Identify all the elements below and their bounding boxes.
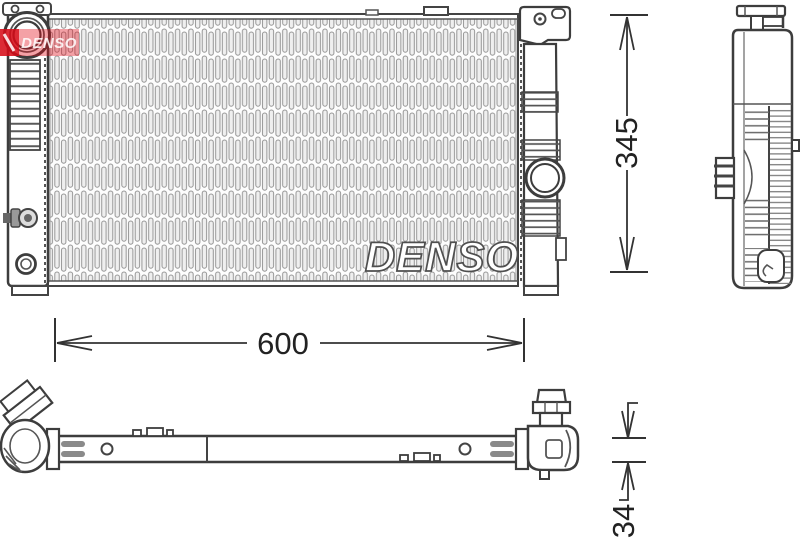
bottom-right-connector bbox=[516, 390, 578, 479]
top-tab bbox=[424, 7, 448, 15]
arrow-left-icon bbox=[57, 343, 92, 350]
dimension-depth: 34 bbox=[606, 403, 646, 538]
dimension-width: 600 bbox=[55, 318, 524, 362]
bar-clip bbox=[133, 430, 141, 436]
technical-drawing-canvas: DENSO bbox=[0, 0, 800, 544]
denso-core-watermark: DENSO bbox=[365, 233, 519, 280]
bar-clip bbox=[414, 453, 430, 461]
right-foot bbox=[524, 286, 558, 295]
bar-slot-icon bbox=[61, 451, 85, 457]
side-ribs-1 bbox=[745, 108, 769, 142]
arrow-up-icon bbox=[627, 17, 634, 50]
left-rib-block bbox=[10, 60, 40, 150]
right-end-flange bbox=[516, 429, 528, 469]
dimension-height: 345 bbox=[609, 15, 648, 272]
bottom-left-connector bbox=[0, 377, 59, 472]
bar-clip bbox=[167, 430, 173, 436]
right-ribs-upper bbox=[522, 92, 558, 112]
bracket-hole-center bbox=[538, 17, 542, 21]
bar-clip bbox=[434, 455, 440, 461]
side-ribs-2 bbox=[745, 196, 769, 240]
side-view bbox=[714, 6, 799, 288]
bar-clip bbox=[147, 428, 163, 436]
radiator-drawing: DENSO bbox=[0, 0, 800, 544]
pipe-ring bbox=[533, 402, 570, 413]
top-notch bbox=[366, 10, 378, 15]
dimension-width-value: 600 bbox=[257, 326, 309, 361]
right-ribs-mid bbox=[522, 140, 560, 160]
denso-logo-watermark: DENSO bbox=[0, 29, 79, 56]
side-right-stub bbox=[792, 140, 799, 151]
bar-slot-icon bbox=[490, 451, 514, 457]
arrow-down-icon bbox=[620, 237, 627, 270]
bracket-slot-icon bbox=[552, 9, 565, 18]
denso-watermark-text: DENSO bbox=[365, 233, 519, 280]
arrow-up-icon bbox=[620, 17, 627, 50]
side-top-flange bbox=[737, 6, 785, 16]
side-drain bbox=[758, 250, 784, 282]
bar-slot-icon bbox=[61, 441, 85, 447]
bar-clip bbox=[400, 455, 408, 461]
side-hose-stub bbox=[716, 158, 734, 198]
side-mini-pipe bbox=[763, 17, 783, 26]
bottom-view bbox=[0, 377, 578, 479]
elbow-detail bbox=[546, 440, 562, 458]
arrow-right-icon bbox=[487, 343, 522, 350]
arrow-right-icon bbox=[487, 336, 522, 343]
dimension-height-value: 345 bbox=[609, 117, 644, 169]
bar-slot-icon bbox=[490, 441, 514, 447]
arrow-down-icon bbox=[627, 237, 634, 270]
dimension-depth-value: 34 bbox=[606, 504, 641, 538]
bracket-hole-icon bbox=[37, 6, 44, 13]
left-foot bbox=[12, 286, 48, 295]
bottom-bar bbox=[57, 436, 522, 462]
arrow-left-icon bbox=[57, 336, 92, 343]
elbow-foot bbox=[540, 470, 549, 479]
lower-port-icon bbox=[17, 255, 36, 274]
denso-logo-text: DENSO bbox=[21, 35, 77, 52]
elbow-body bbox=[1, 420, 49, 472]
bar-hole-icon bbox=[102, 444, 113, 455]
bracket-hole-icon bbox=[12, 6, 19, 13]
right-ribs-lower bbox=[522, 200, 560, 236]
bar-hole-icon bbox=[460, 444, 471, 455]
front-view: DENSO bbox=[3, 3, 570, 295]
right-tab bbox=[556, 238, 566, 260]
right-tank bbox=[520, 7, 570, 295]
